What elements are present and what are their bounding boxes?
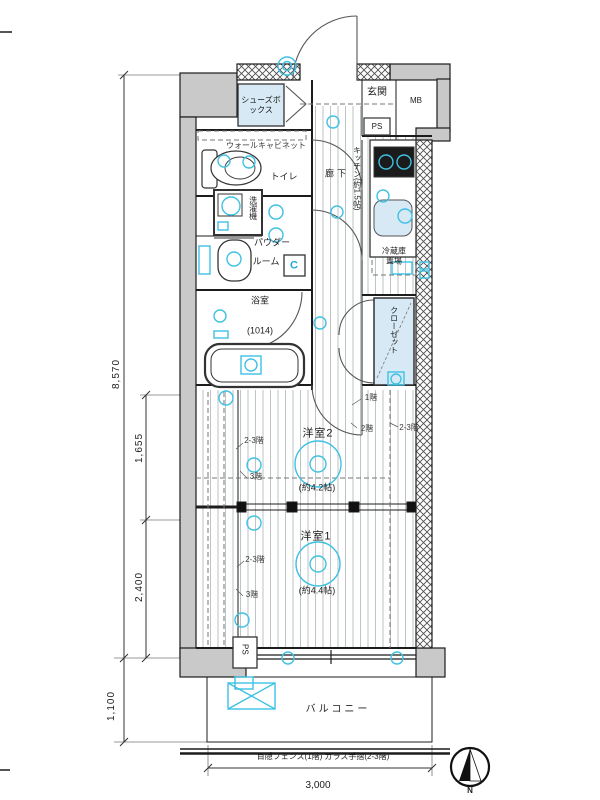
- stove: [374, 147, 414, 177]
- room1-label: 洋室1: [300, 530, 331, 543]
- powder-room-label-2: ルーム: [253, 257, 280, 268]
- dim-balcony-depth: 1,100: [106, 691, 118, 721]
- closet-label: クローゼット: [389, 306, 399, 354]
- ps-lower-label: PS: [240, 644, 250, 655]
- wall-cabinet-label: ウォールキャビネット: [226, 141, 306, 151]
- balcony-label: バルコニー: [306, 704, 371, 716]
- powder-room-label-1: パウダー: [254, 238, 290, 249]
- compass-n-label: N: [467, 786, 473, 796]
- note-3f-lower: 3階: [246, 590, 258, 600]
- bath-label: 浴室: [251, 296, 269, 307]
- kitchen-sink: [374, 200, 412, 236]
- bath-size-label: (1014): [247, 326, 273, 337]
- note-2f: 2階: [361, 424, 373, 434]
- hallway-label: 廊下: [325, 169, 349, 180]
- fridge-label: 冷蔵庫置場: [379, 246, 409, 265]
- note-3f-upper: 3階: [250, 472, 262, 482]
- note-1f: 1階: [365, 393, 377, 403]
- room2-label: 洋室2: [302, 427, 333, 440]
- washbasin: [218, 240, 251, 281]
- c-mark-label: C: [290, 259, 298, 272]
- ps-label: PS: [372, 122, 383, 132]
- room2-size-label: (約4.2帖): [299, 483, 336, 494]
- toilet-label: トイレ: [270, 172, 297, 183]
- dim-room1-depth: 2,400: [134, 572, 146, 602]
- floorplan: 玄関 シューズボックス MB PS トイレ ウォールキャビネット 廊下 キッチン…: [0, 0, 600, 800]
- note-23f-right: 2-3階: [399, 423, 419, 433]
- room1-size-label: (約4.4帖): [299, 586, 336, 597]
- dim-room2-depth: 1,655: [134, 433, 146, 463]
- floorplan-drawing: [0, 0, 600, 800]
- dim-total-depth: 8,570: [111, 359, 123, 389]
- mb-label: MB: [410, 96, 422, 106]
- shoebox-label: シューズボックス: [240, 95, 282, 114]
- toilet-bowl: [211, 151, 261, 185]
- bathtub: [205, 344, 304, 387]
- genkan-label: 玄関: [367, 87, 387, 99]
- dim-width: 3,000: [305, 780, 330, 792]
- compass-icon: [451, 748, 489, 786]
- note-23f-lower: 2-3階: [245, 555, 265, 565]
- note-23f-upper: 2-3階: [244, 436, 264, 446]
- kitchen-label: キッチン(約1.5帖): [352, 146, 362, 210]
- fence-note: 目隠フェンス(1階) ガラス手摺(2-3階): [257, 752, 390, 762]
- laundry-label: 洗濯機: [248, 196, 258, 220]
